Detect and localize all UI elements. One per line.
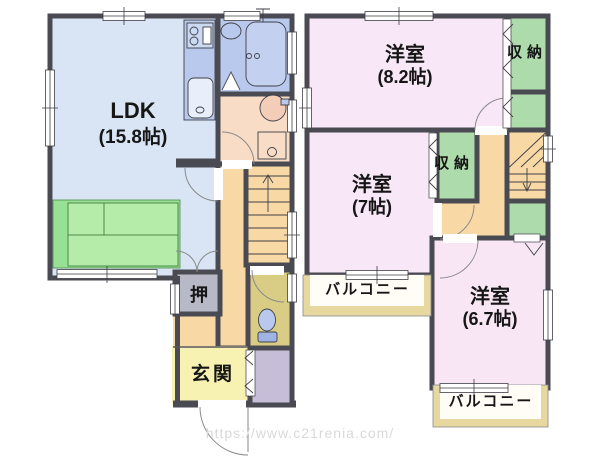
closet-mid	[437, 130, 477, 201]
room-bedroom-7	[307, 130, 437, 275]
room-bedroom-8-2	[307, 16, 507, 130]
wall-stub	[176, 159, 218, 168]
toilet-fixture	[258, 309, 277, 342]
shoe-cabinet-door	[245, 350, 255, 396]
window	[288, 274, 297, 302]
room-bedroom-6-7	[432, 238, 548, 388]
sofa-furniture	[53, 200, 180, 268]
window	[288, 32, 297, 74]
kitchen-sink	[188, 78, 213, 118]
floorplan-graphics	[0, 0, 600, 464]
floorplan: LDK (15.8帖) 洋室 (8.2帖) 洋室 (7帖) 洋室 (6.7帖) …	[0, 0, 600, 464]
window	[299, 88, 312, 128]
shoe-cabinet	[250, 348, 292, 405]
kitchen-counter	[184, 20, 215, 120]
closet-oshiire	[175, 272, 220, 314]
closet-top-b	[507, 92, 548, 130]
window	[224, 12, 260, 21]
stairs-first-floor	[246, 164, 292, 265]
window	[171, 284, 180, 314]
closet-under-stairs	[507, 201, 548, 238]
washing-area	[221, 23, 241, 39]
washer-pan	[258, 132, 286, 159]
door-front-entrance	[198, 400, 248, 455]
balcony-left-area	[303, 275, 431, 316]
room-genkan	[172, 346, 252, 405]
window	[544, 290, 553, 340]
closet-top-a	[507, 16, 548, 92]
